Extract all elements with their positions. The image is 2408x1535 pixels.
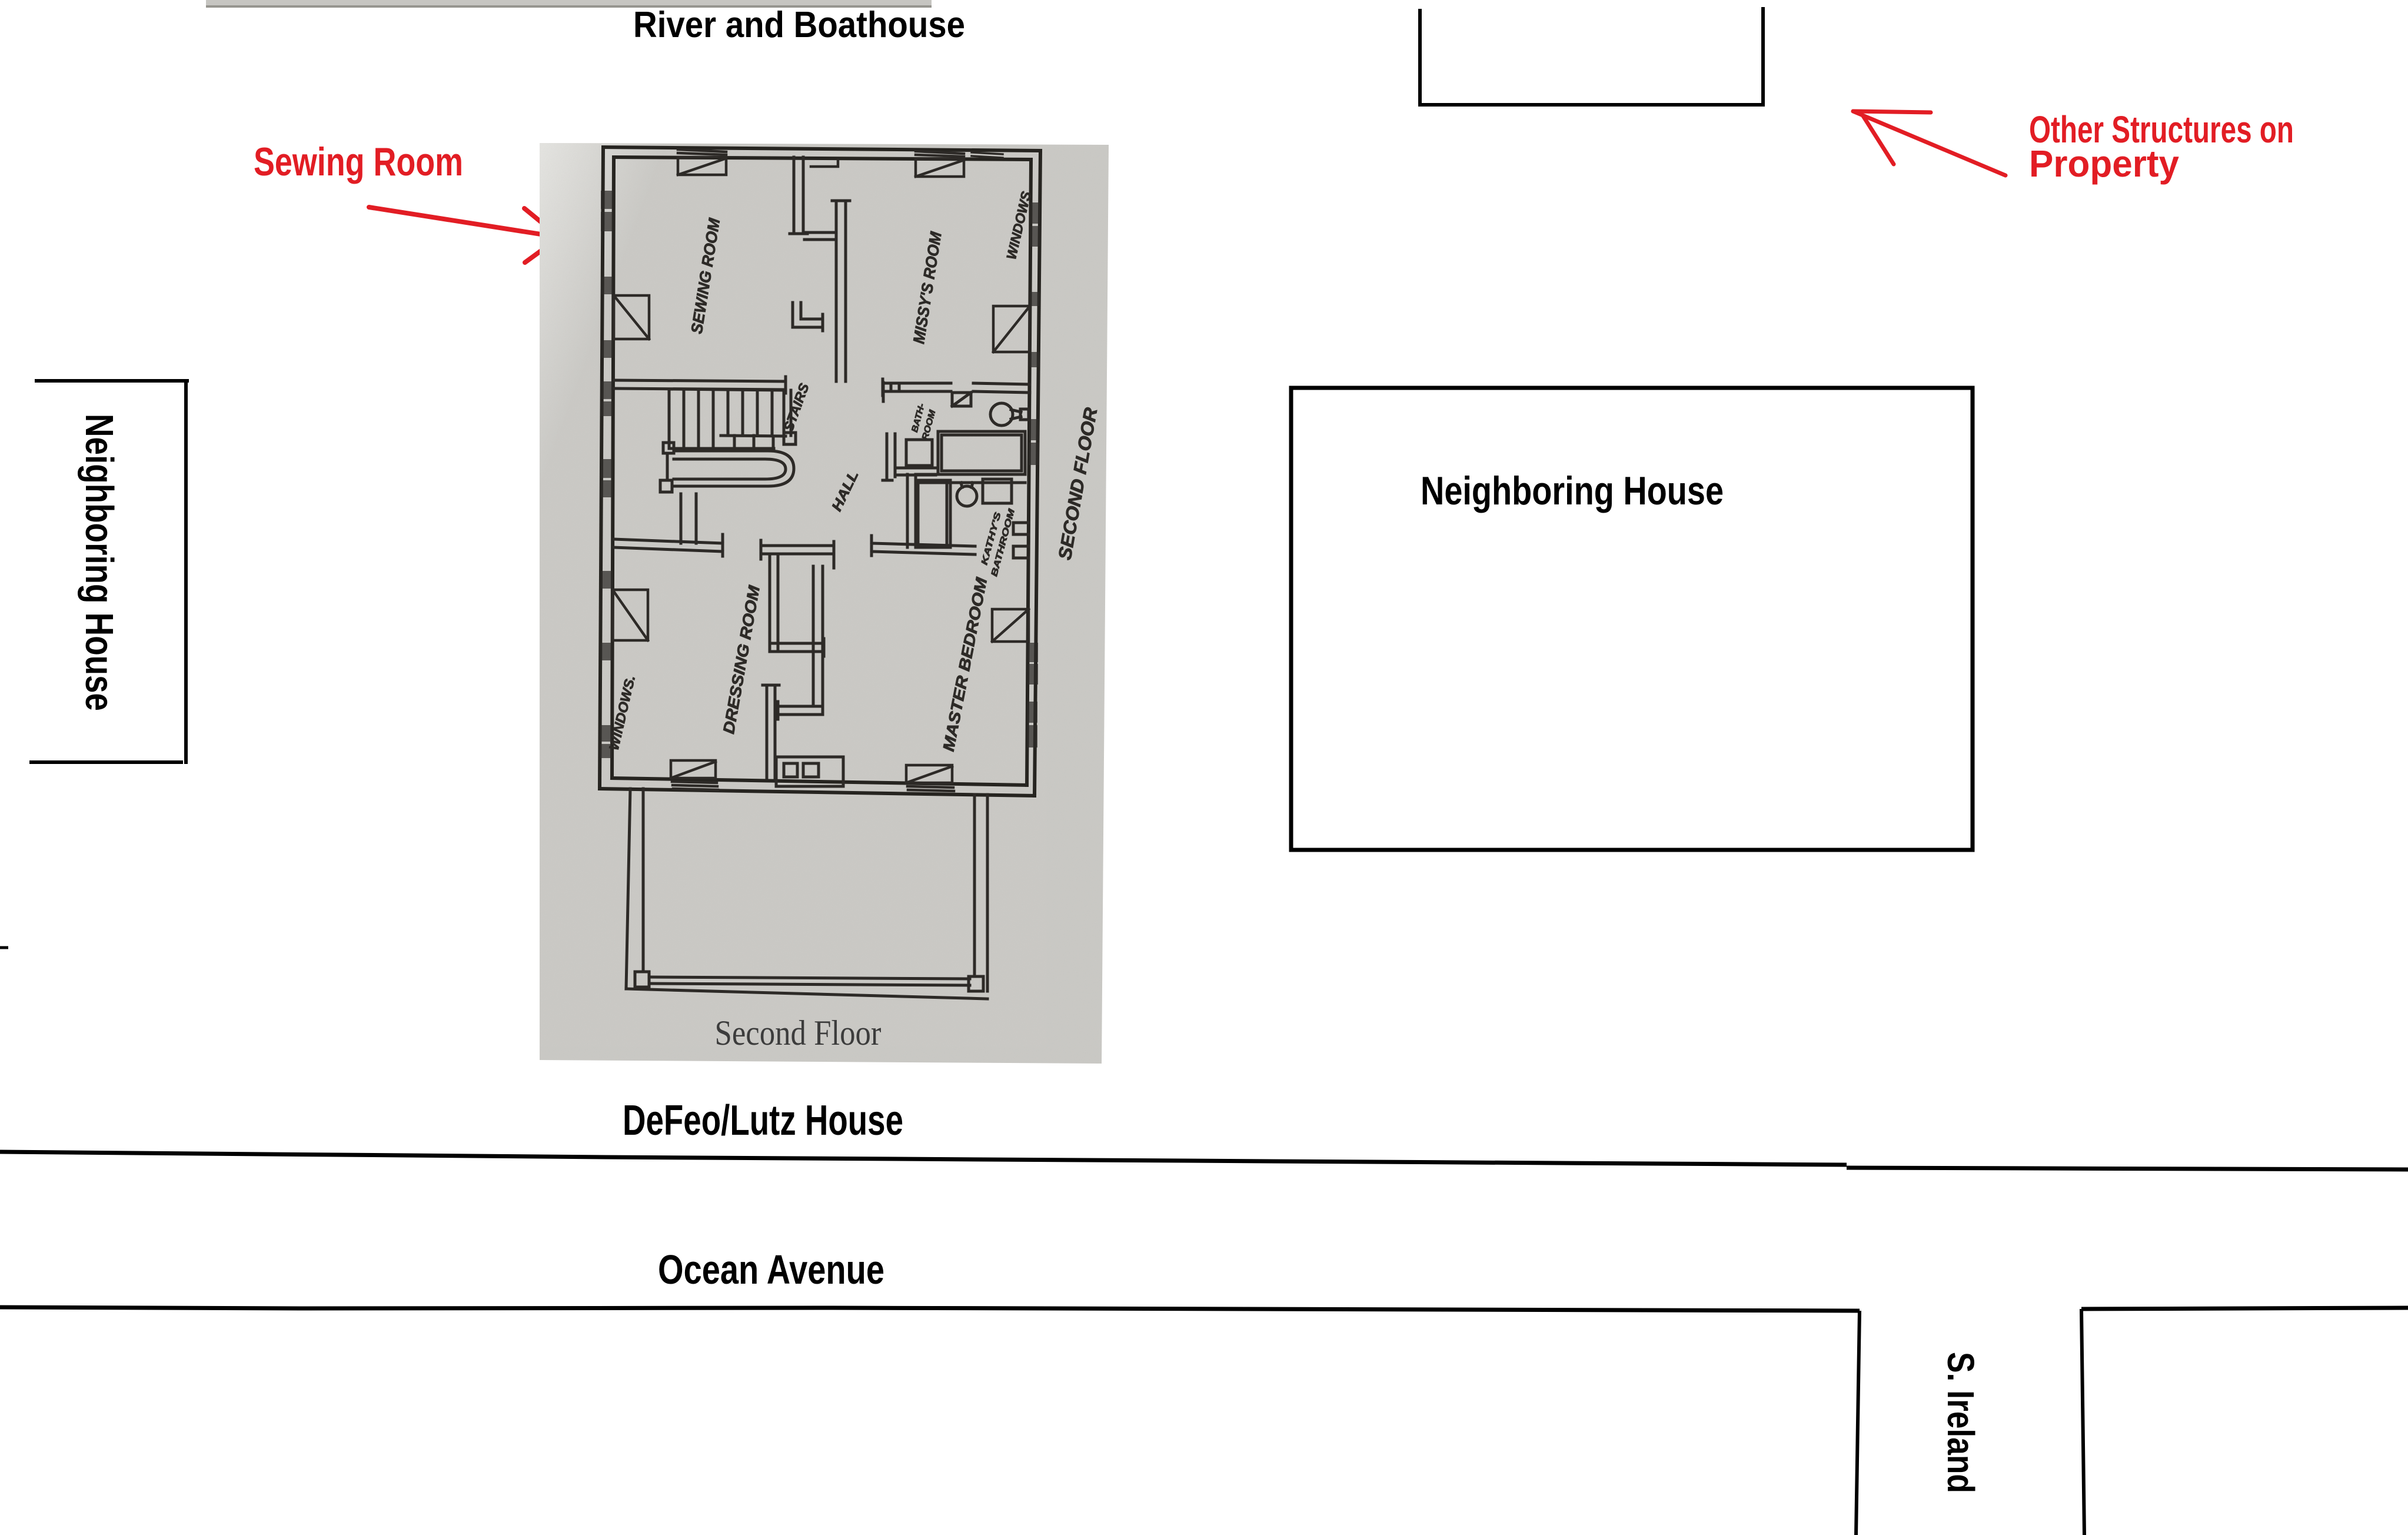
svg-text:S. Ireland: S. Ireland [1940,1352,1982,1493]
svg-text:DeFeo/Lutz House: DeFeo/Lutz House [623,1097,903,1144]
svg-text:Neighboring House: Neighboring House [77,414,121,711]
svg-text:Second Floor: Second Floor [715,1014,882,1052]
svg-text:Property: Property [2029,142,2179,185]
svg-text:Neighboring House: Neighboring House [1421,469,1724,513]
svg-text:Ocean Avenue: Ocean Avenue [658,1247,884,1293]
svg-text:Sewing Room: Sewing Room [254,139,463,184]
svg-text:River and Boathouse: River and Boathouse [633,5,965,45]
